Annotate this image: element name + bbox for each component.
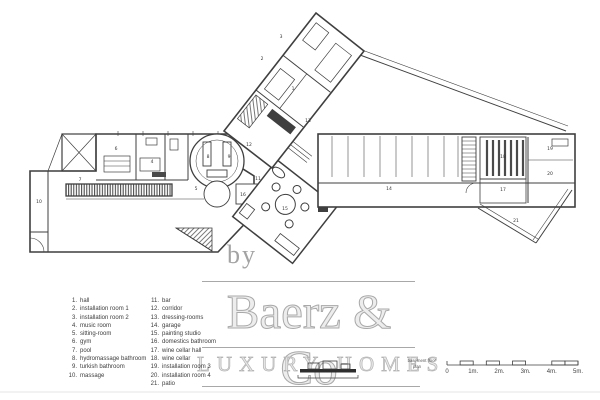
legend-item-label: corridor — [162, 305, 182, 313]
room-number: 12 — [246, 142, 252, 148]
legend-item-number: 4. — [66, 322, 77, 330]
legend-item: 20.installation room 4 — [148, 372, 216, 380]
legend-item-label: gym — [80, 338, 91, 346]
legend-item-number: 6. — [66, 338, 77, 346]
legend-item-label: painting studio — [162, 330, 201, 338]
room-number: 7 — [79, 177, 82, 183]
legend-item: 8.hydromassage bathroom — [66, 355, 146, 363]
room-number: 9 — [228, 154, 231, 160]
room-number: 11 — [255, 176, 261, 182]
room-number: 5 — [195, 186, 198, 192]
scale-label: 0 — [445, 369, 449, 375]
room-number: 18 — [500, 154, 506, 160]
legend-item: 14.garage — [148, 322, 216, 330]
room-number: 2 — [261, 56, 264, 62]
legend-column-1: 1.hall2.installation room 13.installatio… — [66, 297, 146, 380]
wine-cellar-hall — [480, 179, 526, 203]
room-number: 19 — [547, 146, 553, 152]
legend-item-number: 2. — [66, 305, 77, 313]
legend-item: 2.installation room 1 — [66, 305, 146, 313]
legend-item-number: 7. — [66, 347, 77, 355]
legend-item: 6.gym — [66, 338, 146, 346]
legend-item: 1.hall — [66, 297, 146, 305]
legend-item-number: 12. — [148, 305, 159, 313]
legend-item-label: garage — [162, 322, 181, 330]
left-wing — [30, 131, 254, 252]
divider-middle — [202, 347, 415, 348]
legend-item-label: installation room 2 — [80, 314, 129, 322]
legend-item: 19.installation room 3 — [148, 363, 216, 371]
legend-item: 11.bar — [148, 297, 216, 305]
legend-item-number: 8. — [66, 355, 77, 363]
room-number: 6 — [115, 146, 118, 152]
legend-item-label: hydromassage bathroom — [80, 355, 146, 363]
divider-bottom — [202, 386, 420, 387]
room-number: 21 — [513, 218, 519, 224]
legend-item-label: pool — [80, 347, 91, 355]
room-number: 1 — [292, 86, 295, 92]
room-number: 3 — [280, 34, 283, 40]
page: by Baerz & Co LUXURY HOMES 1.hall2.insta… — [0, 0, 600, 400]
room-number: 14 — [386, 186, 392, 192]
room-number-labels: 123456789101112131415161718192021 — [36, 34, 553, 224]
legend-item-label: sitting-room — [80, 330, 111, 338]
legend-item-number: 21. — [148, 380, 159, 388]
wine-cellar — [480, 137, 526, 179]
legend-item: 4.music room — [66, 322, 146, 330]
legend-item: 21.patio — [148, 380, 216, 388]
legend-item: 16.domestics bathroom — [148, 338, 216, 346]
scale-label: 3m. — [521, 369, 531, 375]
legend-item-label: hall — [80, 297, 89, 305]
legend-item-label: wine cellar — [162, 355, 190, 363]
room-number: 13 — [305, 118, 311, 124]
legend-item: 15.painting studio — [148, 330, 216, 338]
legend-item-number: 20. — [148, 372, 159, 380]
legend-item-label: turkish bathroom — [80, 363, 125, 371]
legend-item-label: patio — [162, 380, 175, 388]
scale-bar-labels: 01m.2m.3m.4m.5m. — [445, 369, 583, 375]
legend-item-label: installation room 1 — [80, 305, 129, 313]
legend-item: 18.wine cellar — [148, 355, 216, 363]
room-number: 4 — [151, 159, 154, 165]
legend-item-number: 15. — [148, 330, 159, 338]
room-number: 8 — [207, 154, 210, 160]
legend-item: 17.wine cellar hall — [148, 347, 216, 355]
legend-item-label: dressing-rooms — [162, 314, 203, 322]
scale-label: 5m. — [573, 369, 583, 375]
legend-item-number: 11. — [148, 297, 159, 305]
diagonal-parapet — [360, 50, 568, 131]
legend-item-label: music room — [80, 322, 111, 330]
divider-top — [202, 281, 415, 282]
garage-wing — [318, 134, 575, 207]
skylight — [62, 134, 96, 171]
legend-item-number: 16. — [148, 338, 159, 346]
legend-item-label: wine cellar hall — [162, 347, 201, 355]
legend-item-number: 10. — [66, 372, 77, 380]
stairs-lower — [176, 228, 212, 251]
garage-stairs — [462, 137, 476, 181]
patio-area — [478, 189, 572, 243]
legend-item-number: 9. — [66, 363, 77, 371]
legend-item: 3.installation room 2 — [66, 314, 146, 322]
junction-stairs — [267, 109, 328, 212]
legend-item: 13.dressing-rooms — [148, 314, 216, 322]
legend-item-number: 17. — [148, 347, 159, 355]
legend-item: 5.sitting-room — [66, 330, 146, 338]
room-number: 17 — [500, 187, 506, 193]
room-number: 16 — [240, 192, 246, 198]
room-number: 15 — [282, 206, 288, 212]
scale-label: 1m. — [468, 369, 478, 375]
spa-rotunda — [190, 134, 258, 207]
legend-item: 12.corridor — [148, 305, 216, 313]
watermark-by: by — [227, 240, 257, 270]
legend-column-2: 11.bar12.corridor13.dressing-rooms14.gar… — [148, 297, 216, 388]
legend-item: 9.turkish bathroom — [66, 363, 146, 371]
pool-area — [66, 184, 204, 199]
upper-wing — [224, 13, 364, 168]
legend-item-label: installation room 3 — [162, 363, 211, 371]
room-number: 20 — [547, 171, 553, 177]
room-number: 10 — [36, 199, 42, 205]
watermark-brand: Baerz & Co — [194, 284, 424, 396]
legend-item-label: massage — [80, 372, 104, 380]
legend-item-label: installation room 4 — [162, 372, 211, 380]
scale-label: 4m. — [547, 369, 557, 375]
legend-item-number: 5. — [66, 330, 77, 338]
watermark-tagline: LUXURY HOMES — [197, 352, 445, 377]
legend-item: 7.pool — [66, 347, 146, 355]
legend-item-number: 13. — [148, 314, 159, 322]
legend-item-number: 1. — [66, 297, 77, 305]
legend-item-number: 3. — [66, 314, 77, 322]
legend-item-number: 14. — [148, 322, 159, 330]
legend-item-number: 19. — [148, 363, 159, 371]
scale-label: 2m. — [494, 369, 504, 375]
legend-item-number: 18. — [148, 355, 159, 363]
scale-bar — [447, 361, 578, 365]
legend-item-label: bar — [162, 297, 171, 305]
legend-item-label: domestics bathroom — [162, 338, 216, 346]
legend-item: 10.massage — [66, 372, 146, 380]
